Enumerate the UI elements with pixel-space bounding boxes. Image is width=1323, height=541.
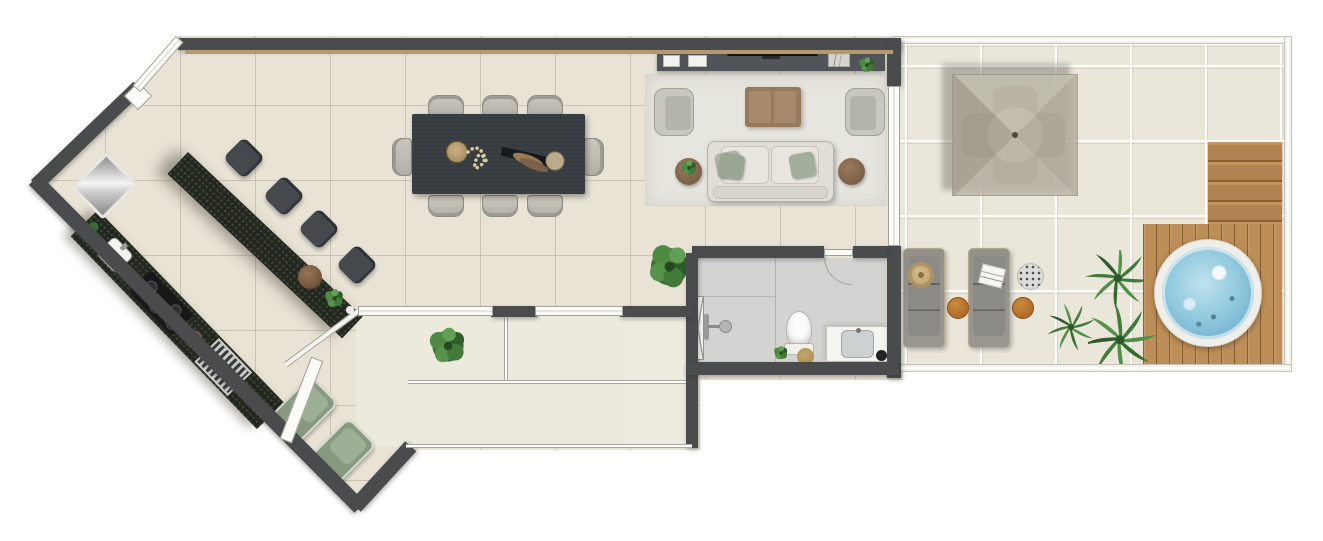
hallway-plant (628, 240, 690, 308)
hallway-wall (620, 306, 692, 317)
palm-plant (1088, 293, 1162, 367)
terrace-parapet-bottom (893, 364, 1292, 372)
terrace-side-table (1012, 297, 1034, 319)
table-centerpiece (462, 134, 582, 179)
armchair-seat (665, 96, 691, 130)
armchair-seat (850, 96, 876, 130)
shower-head (719, 320, 732, 333)
wall-right-lower (887, 246, 901, 378)
bathroom-door-leaf (824, 249, 853, 256)
bathroom-wall-top-right (853, 246, 887, 258)
stair-upper-flight (508, 318, 623, 380)
terrace-parapet-top (893, 36, 1292, 44)
coffee-table (745, 87, 801, 127)
bathroom-plant (771, 343, 791, 363)
sun-lounger (968, 248, 1010, 348)
terrace-parapet-right (1284, 36, 1292, 372)
island-wood-bowl (298, 265, 322, 289)
umbrella-pole (1012, 132, 1018, 138)
island-small-dish (346, 306, 354, 314)
stair-bottom-edge (406, 444, 692, 448)
stair-wall-piece (491, 306, 537, 317)
potted-plant (422, 318, 474, 374)
dining-chair (428, 95, 464, 116)
sink-faucet (856, 328, 861, 333)
straw-hat (908, 262, 934, 288)
toilet (786, 311, 812, 347)
side-table (838, 158, 865, 185)
dining-chair (392, 138, 412, 176)
dining-chair (482, 195, 518, 217)
bathroom-wall-bottom (686, 362, 899, 375)
dining-chair (527, 195, 563, 217)
dining-chair (527, 95, 563, 116)
armchair (845, 88, 885, 136)
table-panel (774, 91, 796, 123)
deck-steps (1208, 142, 1282, 224)
floor-plan (0, 0, 1323, 541)
wall-top (178, 38, 901, 50)
table-panel (749, 91, 771, 123)
sofa-pillow (717, 152, 746, 181)
side-table-plant (677, 157, 701, 179)
sliding-glass-door (888, 86, 900, 246)
hot-tub-water (1162, 247, 1254, 339)
stair-window (535, 306, 623, 316)
stair-window (358, 306, 493, 316)
wall-right-upper (887, 38, 901, 86)
console-plant (854, 54, 880, 76)
framed-art (828, 52, 850, 67)
stair-lower-flight (408, 384, 625, 444)
decor-box (688, 55, 707, 67)
island-plant-bowl (321, 285, 348, 312)
sofa-pillow (788, 151, 817, 180)
stair-rail (504, 318, 508, 380)
stair-rail-divider (408, 380, 692, 384)
sofa-back (713, 186, 828, 199)
terrace-side-table (947, 297, 969, 319)
tv-stand (762, 56, 780, 59)
decor-box (663, 55, 680, 67)
bathroom-wall-top-left (692, 246, 824, 258)
dining-chair (428, 195, 464, 217)
dining-chair (482, 95, 518, 116)
bathroom-wall-left (686, 253, 698, 448)
waste-bin (876, 350, 887, 361)
dining-table (412, 114, 585, 194)
wall-top-wood-trim (185, 50, 893, 54)
pebble-planter (1017, 263, 1044, 290)
faucet (119, 242, 128, 251)
armchair (654, 88, 694, 136)
dining-chair (584, 138, 604, 176)
bathroom-sink (841, 330, 874, 358)
